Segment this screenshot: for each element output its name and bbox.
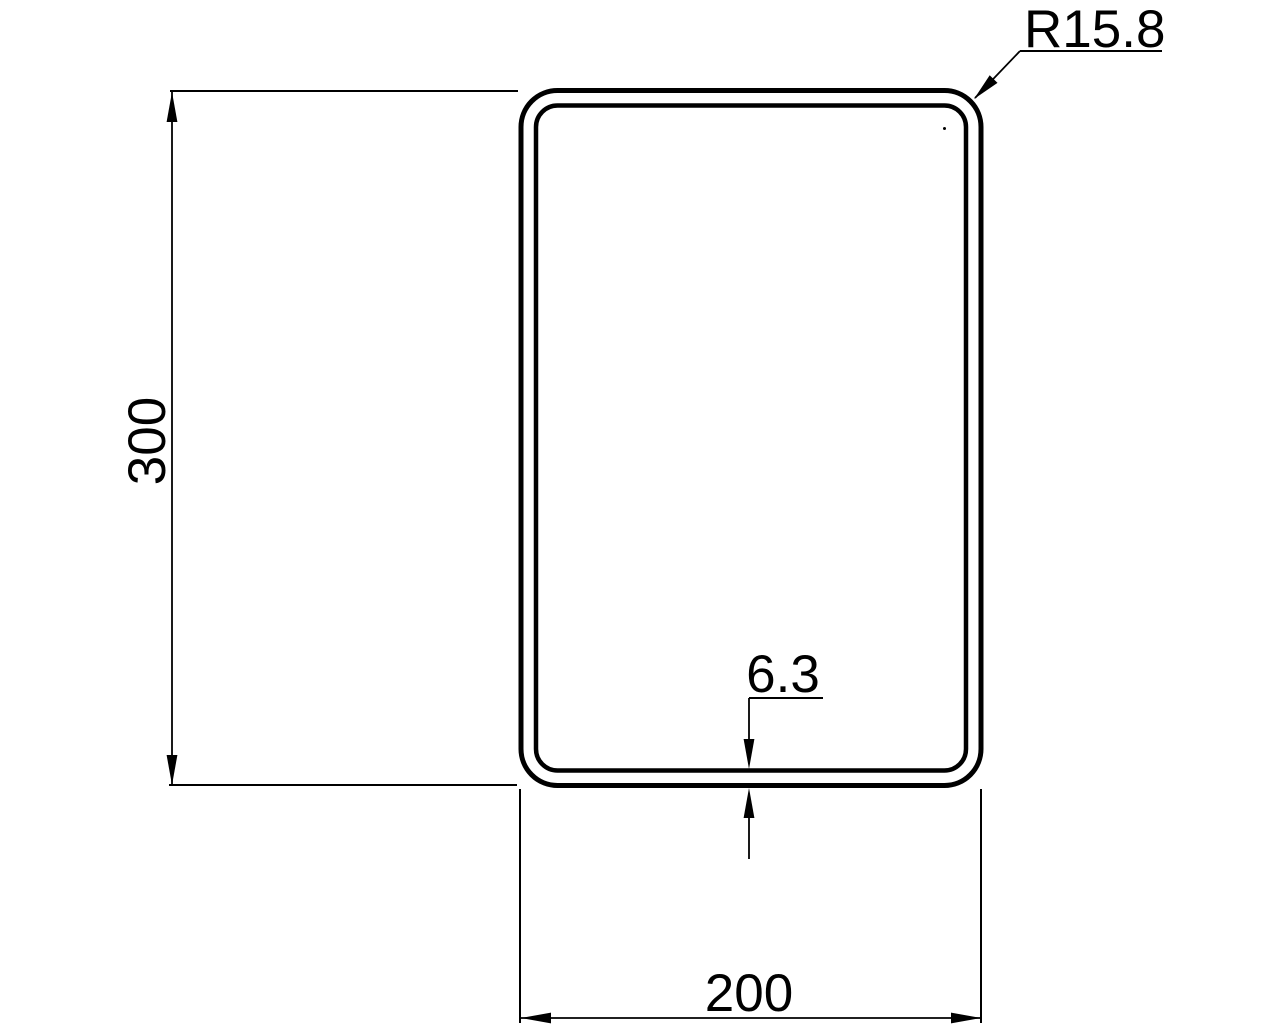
width-arrow-left-icon (521, 1013, 551, 1024)
wall-thickness-arrow-up-icon (744, 788, 755, 818)
wall-thickness-arrow-down-icon (744, 739, 755, 769)
height-arrow-up-icon (167, 92, 178, 122)
dimension-corner-radius: R15.8 (974, 0, 1165, 99)
dimension-wall-thickness: 6.3 (744, 645, 823, 859)
engineering-drawing: 300 200 6.3 R15.8 (0, 0, 1280, 1024)
dimension-height: 300 (118, 91, 518, 785)
drawing-canvas: 300 200 6.3 R15.8 (0, 0, 1280, 1024)
width-arrow-right-icon (951, 1013, 981, 1024)
dimension-width: 200 (520, 789, 981, 1023)
width-dimension-label: 200 (705, 964, 793, 1023)
stray-point-mark (943, 127, 946, 130)
height-dimension-label: 300 (118, 397, 177, 485)
height-arrow-down-icon (167, 755, 178, 785)
wall-thickness-label: 6.3 (746, 645, 820, 704)
